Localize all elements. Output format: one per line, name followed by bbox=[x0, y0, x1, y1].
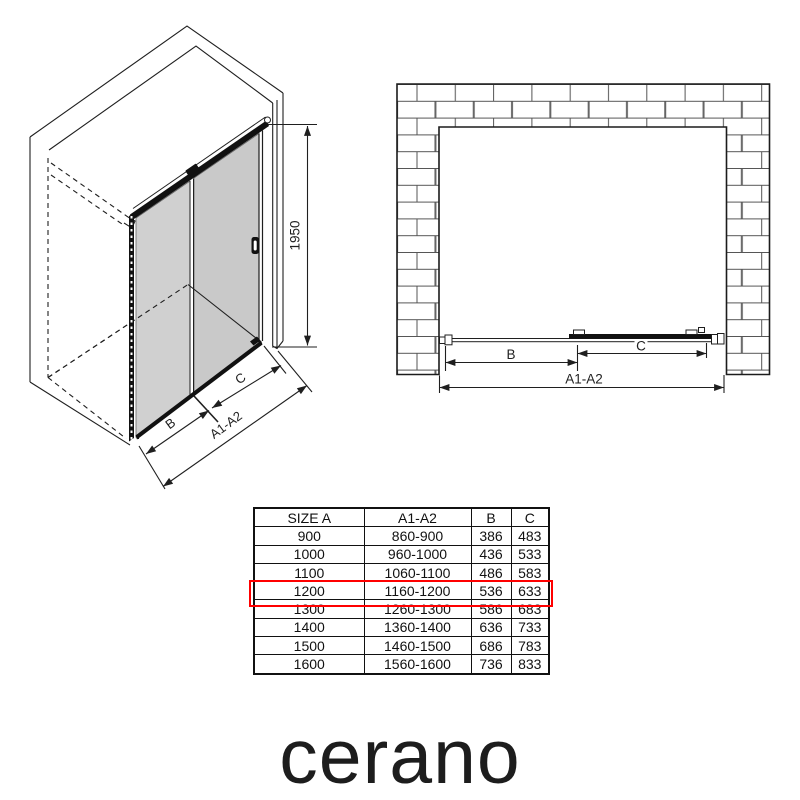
iso-glass-fixed-panel bbox=[136, 181, 190, 437]
cell-b: 586 bbox=[471, 600, 511, 618]
front-stopper bbox=[699, 328, 705, 333]
front-dim-b-label: B bbox=[506, 347, 515, 362]
table-row: 1500 1460-1500 686 783 bbox=[254, 637, 549, 655]
technical-drawing-canvas: 1950 B C A1-A2 bbox=[0, 0, 800, 800]
cell-range: 960-1000 bbox=[364, 545, 471, 563]
cell-c: 683 bbox=[511, 600, 549, 618]
cell-size: 1500 bbox=[254, 637, 364, 655]
iso-drawing: 1950 B C A1-A2 bbox=[30, 26, 317, 489]
cell-range: 1460-1500 bbox=[364, 637, 471, 655]
cell-b: 536 bbox=[471, 582, 511, 600]
size-table-container: SIZE A A1-A2 B C 900 860-900 386 483 100… bbox=[253, 507, 550, 675]
cell-b: 386 bbox=[471, 527, 511, 545]
cell-c: 833 bbox=[511, 655, 549, 674]
col-header-b: B bbox=[471, 508, 511, 527]
iso-dim-height-label: 1950 bbox=[288, 220, 303, 250]
front-fixed-panel bbox=[452, 339, 716, 342]
iso-right-column bbox=[273, 93, 283, 349]
iso-dim-b-label: B bbox=[162, 415, 178, 432]
table-row: 1400 1360-1400 636 733 bbox=[254, 618, 549, 636]
col-header-a1-a2: A1-A2 bbox=[364, 508, 471, 527]
cell-range: 1060-1100 bbox=[364, 563, 471, 581]
cell-size: 1100 bbox=[254, 563, 364, 581]
cell-range: 860-900 bbox=[364, 527, 471, 545]
cell-size: 1400 bbox=[254, 618, 364, 636]
front-drawing: B C A1-A2 bbox=[397, 84, 770, 393]
cell-b: 636 bbox=[471, 618, 511, 636]
iso-glass-right-frame bbox=[259, 131, 263, 344]
front-roller-clip-left bbox=[574, 330, 585, 335]
front-wall-profile-left-b bbox=[445, 335, 452, 345]
brand-logo: cerano bbox=[0, 719, 800, 796]
table-header-row: SIZE A A1-A2 B C bbox=[254, 508, 549, 527]
cell-c: 533 bbox=[511, 545, 549, 563]
table-row: 900 860-900 386 483 bbox=[254, 527, 549, 545]
cell-range: 1260-1300 bbox=[364, 600, 471, 618]
iso-wall-inner-ridge bbox=[49, 46, 273, 150]
cell-range: 1160-1200 bbox=[364, 582, 471, 600]
iso-dim-c-label: C bbox=[232, 370, 248, 388]
front-dims: B C A1-A2 bbox=[440, 339, 725, 394]
table-row: 1600 1560-1600 736 833 bbox=[254, 655, 549, 674]
cell-size: 1600 bbox=[254, 655, 364, 674]
col-header-size-a: SIZE A bbox=[254, 508, 364, 527]
door-handle-icon bbox=[252, 237, 260, 254]
front-door-plan bbox=[440, 328, 725, 345]
cell-size: 1300 bbox=[254, 600, 364, 618]
cell-b: 486 bbox=[471, 563, 511, 581]
cell-b: 436 bbox=[471, 545, 511, 563]
cell-b: 736 bbox=[471, 655, 511, 674]
front-wall-profile-right-b bbox=[718, 334, 725, 345]
table-row: 1000 960-1000 436 533 bbox=[254, 545, 549, 563]
iso-dim-height: 1950 bbox=[268, 125, 317, 348]
cell-size: 900 bbox=[254, 527, 364, 545]
table-row: 1100 1060-1100 486 583 bbox=[254, 563, 549, 581]
cell-c: 583 bbox=[511, 563, 549, 581]
cell-b: 686 bbox=[471, 637, 511, 655]
cell-c: 733 bbox=[511, 618, 549, 636]
cell-range: 1360-1400 bbox=[364, 618, 471, 636]
table-row: 1300 1260-1300 586 683 bbox=[254, 600, 549, 618]
cell-range: 1560-1600 bbox=[364, 655, 471, 674]
table-row-highlighted: 1200 1160-1200 536 633 bbox=[254, 582, 549, 600]
front-wall-profile-right-a bbox=[712, 335, 718, 345]
cell-size: 1000 bbox=[254, 545, 364, 563]
iso-wall-bottom-edge bbox=[30, 382, 130, 445]
front-wall-profile-left-a bbox=[440, 337, 446, 344]
cell-c: 783 bbox=[511, 637, 549, 655]
iso-dim-a-label: A1-A2 bbox=[207, 408, 245, 442]
size-table: SIZE A A1-A2 B C 900 860-900 386 483 100… bbox=[253, 507, 550, 675]
front-dim-a-label: A1-A2 bbox=[565, 372, 603, 387]
iso-wall-outer-ridge bbox=[30, 26, 283, 137]
col-header-c: C bbox=[511, 508, 549, 527]
front-dim-c-label: C bbox=[636, 339, 646, 354]
cell-c: 633 bbox=[511, 582, 549, 600]
iso-rail-end-knob bbox=[265, 117, 271, 123]
cell-c: 483 bbox=[511, 527, 549, 545]
front-roller-clip-right bbox=[686, 330, 697, 335]
cell-size: 1200 bbox=[254, 582, 364, 600]
